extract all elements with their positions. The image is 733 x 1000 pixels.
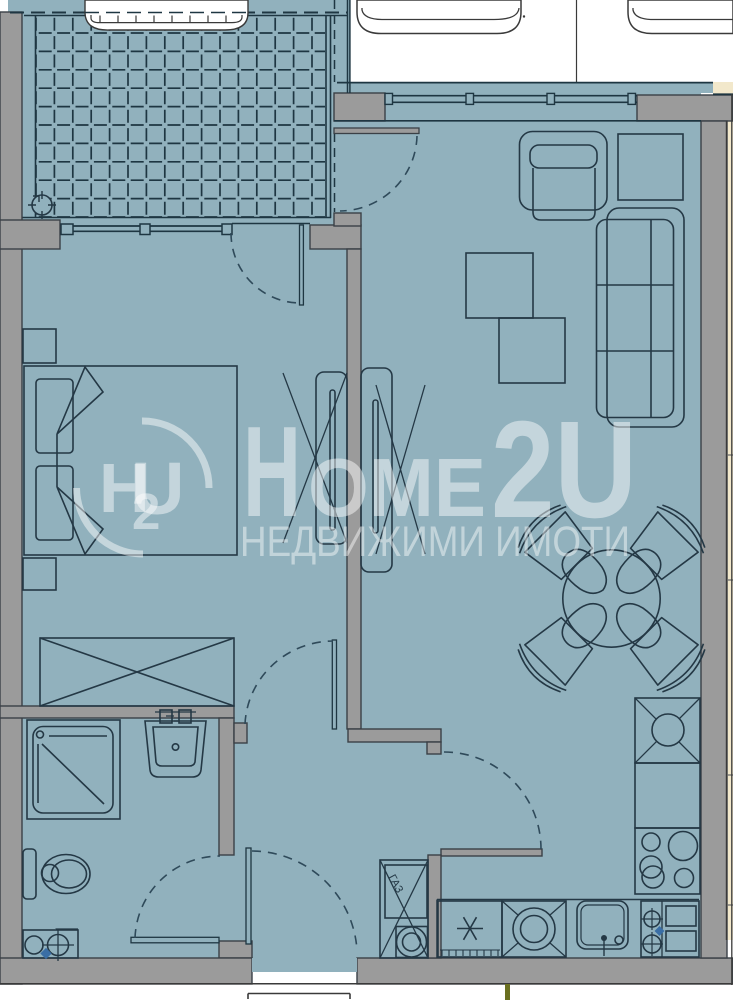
- svg-text:2: 2: [132, 483, 160, 540]
- svg-text:НЕДВИЖИМИ ИМОТИ: НЕДВИЖИМИ ИМОТИ: [240, 518, 630, 566]
